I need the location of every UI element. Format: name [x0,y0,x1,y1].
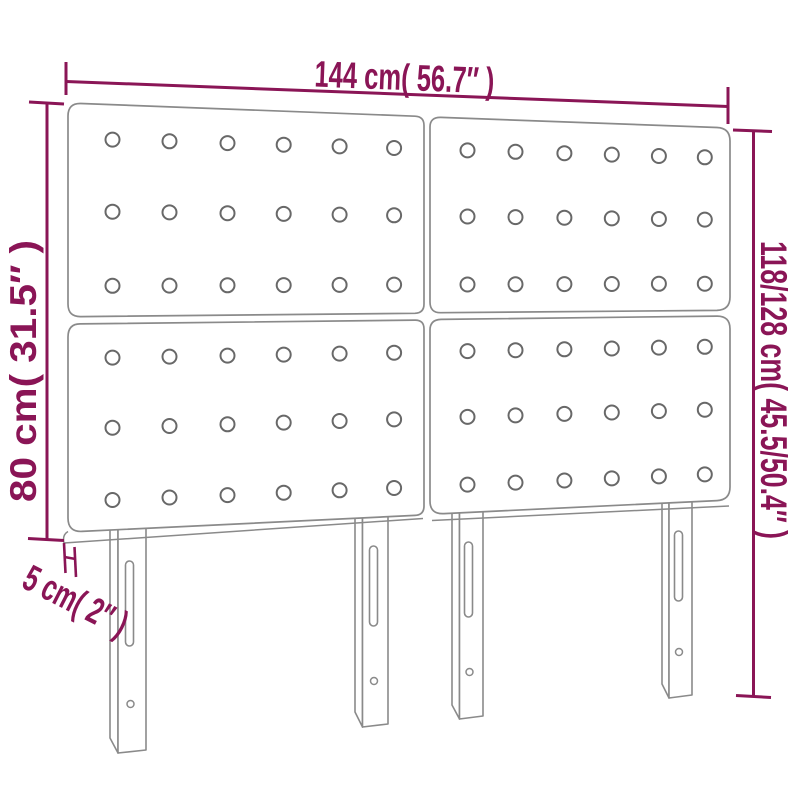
total-height-dimension: 118/128 cm( 45.5/50.4″ ) [733,130,794,698]
tufting-button [509,476,523,490]
tufting-button [277,486,291,500]
tufting-button [652,149,666,163]
tufting-button [605,342,619,356]
tufting-button [221,136,235,150]
tufting-button [106,205,120,219]
tufting-button [333,483,347,497]
tufting-button [509,408,523,422]
headboard-dimension-diagram: 144 cm( 56.7″ ) 80 cm( 31.5″ ) 118/128 c… [0,0,800,800]
thickness-tick-back [75,547,77,577]
tufting-button [333,278,347,292]
leg-screw-hole [676,649,683,656]
tufting-button [277,278,291,292]
tufting-button [333,347,347,361]
total-height-label: 118/128 cm( 45.5/50.4″ ) [753,241,794,539]
tufting-button [333,414,347,428]
tufting-button [698,277,712,291]
tufting-button [557,211,571,225]
tufting-button [163,279,177,293]
tufting-button [163,205,177,219]
leg-side-face [662,493,669,698]
tufting-button [333,139,347,153]
tufting-button [605,148,619,162]
tufting-button [277,138,291,152]
tufting-button [106,351,120,365]
leg-mounting-slot [675,531,683,601]
headboard-leg-3 [452,503,483,719]
headboard-panel-top-left [68,103,424,316]
tufting-button [277,207,291,221]
tufting-button [163,491,177,505]
tufting-button [461,278,475,292]
tufting-button [605,277,619,291]
tufting-button [277,348,291,362]
tufting-button [461,478,475,492]
tufting-button [106,493,120,507]
tufting-button [387,412,401,426]
tufting-button [221,488,235,502]
tufting-button [277,416,291,430]
tufting-button [387,208,401,222]
tufting-button [106,133,120,147]
tufting-button [461,344,475,358]
tufting-button [605,471,619,485]
tufting-button [652,341,666,355]
tufting-button [605,406,619,420]
tufting-button [557,146,571,160]
tufting-button [461,143,475,157]
leg-screw-hole [466,669,473,676]
tufting-button [221,206,235,220]
tufting-button [461,410,475,424]
tufting-button [461,210,475,224]
total-height-tick-bottom [736,696,771,698]
tufting-button [652,277,666,291]
headboard-panel-bottom-left [68,320,424,531]
tufting-button [163,134,177,148]
tufting-button [106,279,120,293]
panel-height-label: 80 cm( 31.5″ ) [3,240,44,502]
tufting-button [221,349,235,363]
width-dimension-label: 144 cm( 56.7″ ) [314,54,495,102]
tufting-button [163,419,177,433]
tufting-button [698,403,712,417]
tufting-button [652,212,666,226]
tufting-button [387,346,401,360]
tufting-button [698,340,712,354]
tufting-button [387,141,401,155]
tufting-button [387,278,401,292]
tufting-button [387,481,401,495]
tufting-button [221,417,235,431]
panel-height-dimension: 80 cm( 31.5″ ) [3,102,64,541]
tufting-button [557,277,571,291]
tufting-button [605,211,619,225]
leg-screw-hole [127,701,134,708]
tufting-button [557,407,571,421]
leg-side-face [452,504,460,719]
leg-mounting-slot [370,546,378,626]
panel-height-tick-bottom [28,539,64,541]
tufting-button [698,467,712,481]
tufting-button [163,350,177,364]
tufting-button [698,213,712,227]
tufting-button [509,210,523,224]
tufting-button [652,469,666,483]
tufting-button [509,145,523,159]
leg-mounting-slot [465,542,473,617]
tufting-button [652,404,666,418]
tufting-button [557,474,571,488]
leg-screw-hole [371,678,378,685]
leg-side-face [355,507,363,727]
headboard-leg-2 [355,506,388,727]
diagram-canvas: 144 cm( 56.7″ ) 80 cm( 31.5″ ) 118/128 c… [0,0,800,800]
tufting-button [698,150,712,164]
tufting-button [106,421,120,435]
headboard-leg-4 [662,492,692,698]
tufting-button [333,208,347,222]
tufting-button [509,343,523,357]
tufting-button [509,277,523,291]
tufting-button [221,278,235,292]
tufting-button [557,342,571,356]
